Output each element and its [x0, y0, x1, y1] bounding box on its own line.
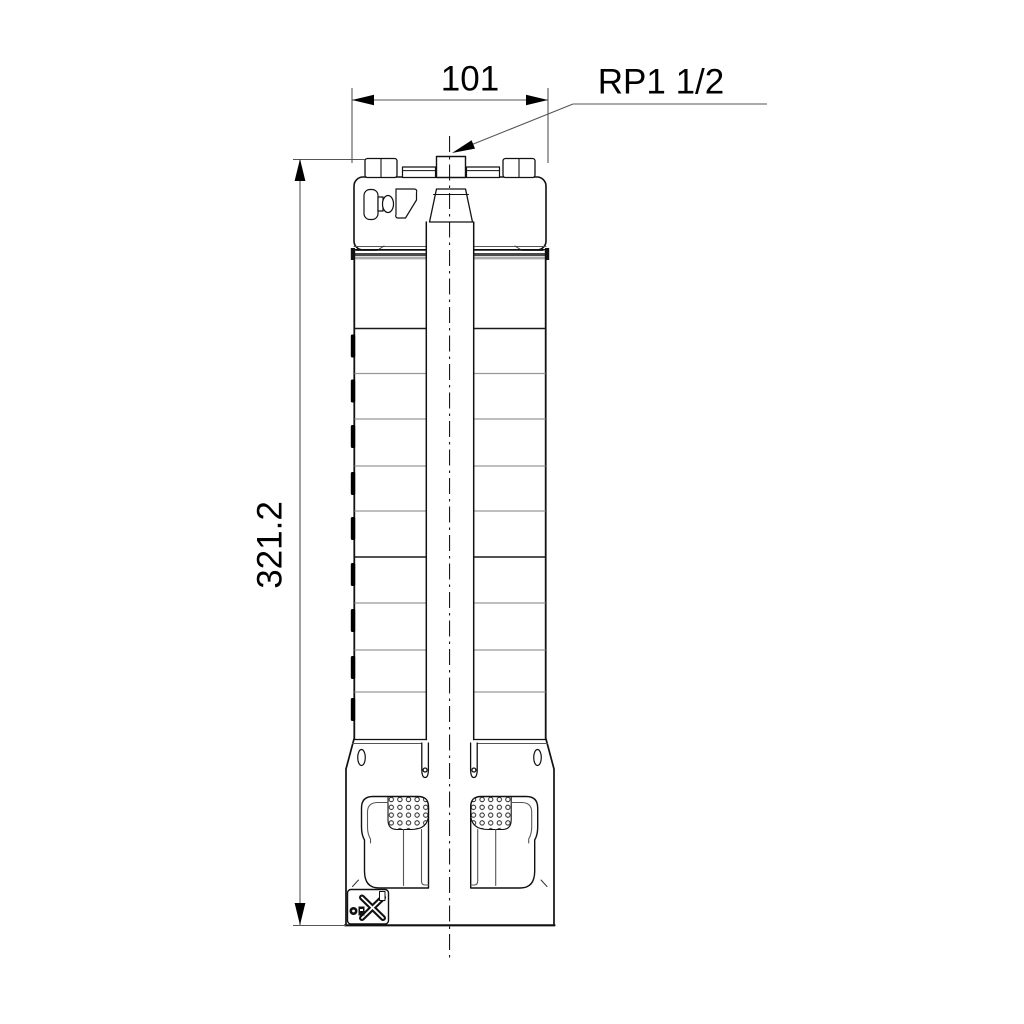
width-dimension-label: 101 [441, 59, 499, 98]
connection-label: RP1 1/2 [598, 62, 724, 101]
check-valve-cone [430, 189, 473, 222]
pump-dimensional-drawing: 101 321.2 RP1 1/2 [0, 0, 1024, 1024]
leader-arrow-icon [452, 140, 475, 153]
left-vent-hole [358, 750, 366, 766]
connection-leader: RP1 1/2 [452, 62, 767, 153]
cable-guard-clips [351, 335, 355, 722]
top-plate-right [467, 167, 500, 178]
arrow-left-icon [352, 95, 374, 105]
drawing-canvas: 101 321.2 RP1 1/2 [0, 0, 1024, 1024]
arrow-down-icon [295, 903, 306, 925]
arrow-up-icon [295, 159, 306, 181]
top-plate-left [403, 167, 436, 178]
height-dimension-label: 321.2 [250, 501, 289, 589]
arrow-right-icon [526, 95, 548, 105]
height-dimension: 321.2 [250, 159, 365, 926]
discharge-port-boss [437, 157, 466, 178]
intake-screen-left [362, 797, 429, 889]
intake-screen-right [471, 797, 538, 889]
manufacturer-badge [348, 890, 389, 925]
right-vent-hole [534, 750, 542, 766]
